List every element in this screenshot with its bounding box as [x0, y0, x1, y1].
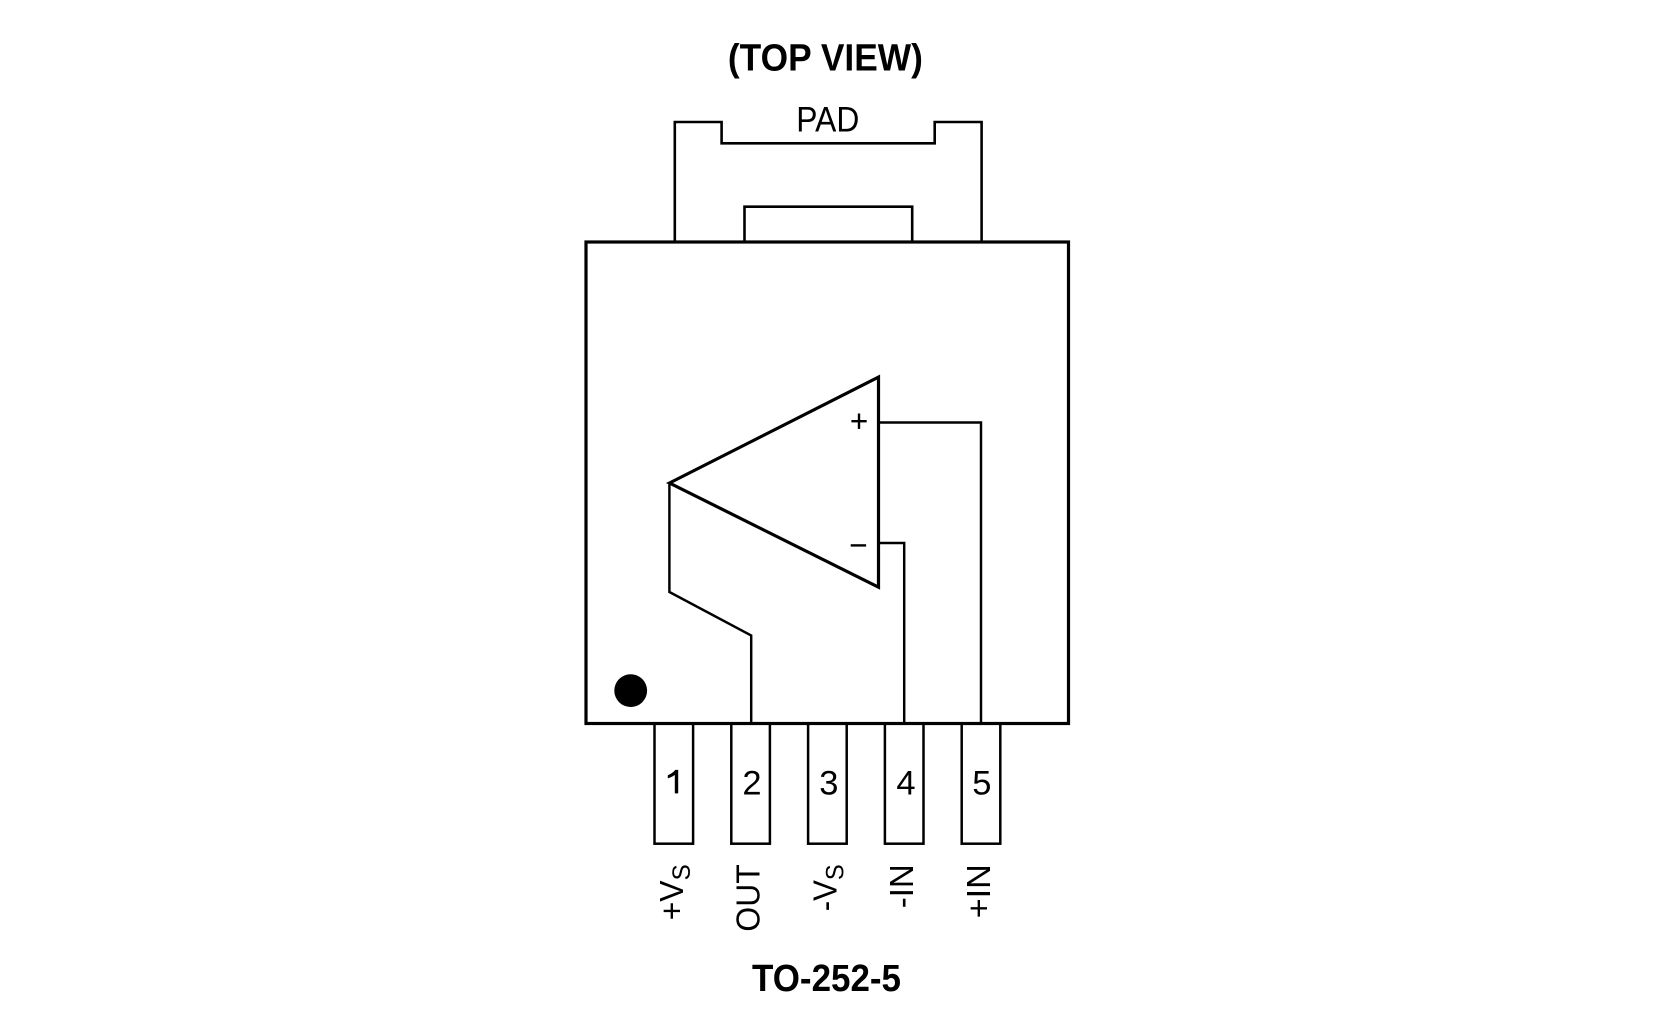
svg-text:OUT: OUT [730, 864, 767, 931]
svg-text:TO-252-5: TO-252-5 [752, 958, 901, 1000]
svg-text:2: 2 [742, 764, 761, 802]
svg-text:4: 4 [896, 764, 915, 802]
svg-text:3: 3 [819, 764, 838, 802]
svg-text:+IN: +IN [960, 864, 997, 918]
svg-text:5: 5 [972, 764, 991, 802]
svg-text:(TOP VIEW): (TOP VIEW) [728, 37, 923, 79]
svg-text:-IN: -IN [883, 864, 920, 908]
svg-text:PAD: PAD [796, 101, 859, 140]
